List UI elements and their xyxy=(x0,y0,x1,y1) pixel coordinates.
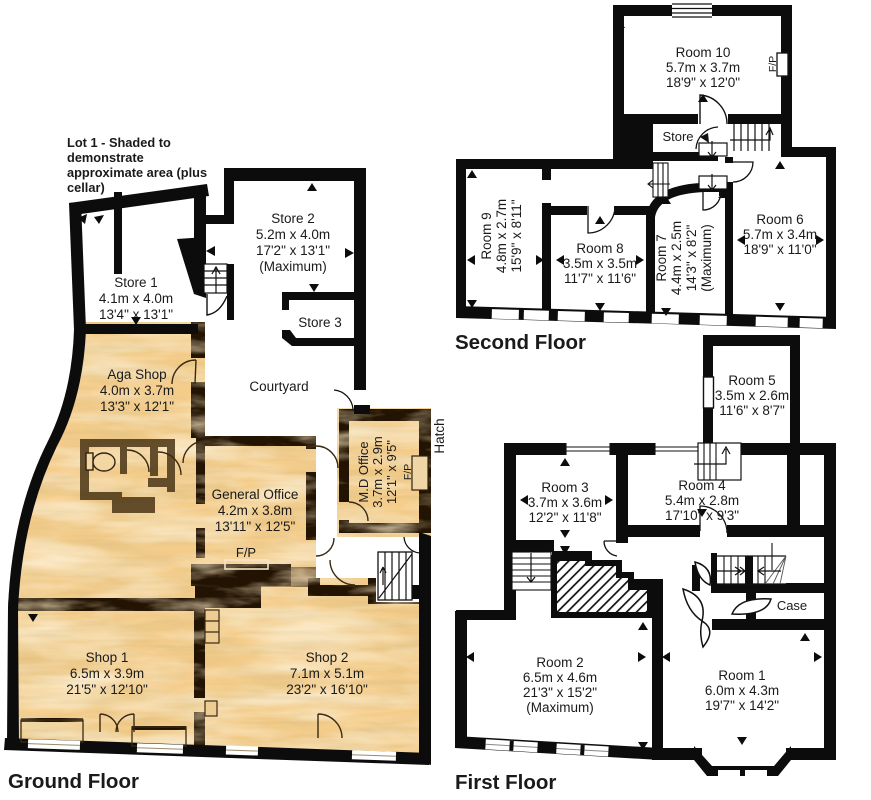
svg-text:Room 10: Room 10 xyxy=(676,45,731,60)
svg-text:3.7m x 2.9m: 3.7m x 2.9m xyxy=(370,436,385,508)
svg-text:Room 5: Room 5 xyxy=(728,373,775,388)
svg-text:5.7m x 3.4m: 5.7m x 3.4m xyxy=(743,227,817,242)
svg-text:4.8m x 2.7m: 4.8m x 2.7m xyxy=(494,199,509,273)
svg-text:Room 6: Room 6 xyxy=(756,212,803,227)
svg-text:Hatch: Hatch xyxy=(432,418,447,453)
svg-text:3.5m x 2.6m: 3.5m x 2.6m xyxy=(715,388,789,403)
svg-text:Store 1: Store 1 xyxy=(114,275,158,290)
svg-text:5.7m x 3.7m: 5.7m x 3.7m xyxy=(666,60,740,75)
svg-text:Store: Store xyxy=(662,129,693,144)
svg-text:18'9" x 11'0": 18'9" x 11'0" xyxy=(743,242,816,257)
svg-text:F/P: F/P xyxy=(236,545,256,560)
svg-text:12'2" x 11'8": 12'2" x 11'8" xyxy=(528,510,601,525)
svg-text:Courtyard: Courtyard xyxy=(249,379,308,394)
svg-text:5.2m x 4.0m: 5.2m x 4.0m xyxy=(256,227,330,242)
svg-text:23'2" x 16'10": 23'2" x 16'10" xyxy=(286,682,368,697)
svg-text:F/P: F/P xyxy=(402,464,414,480)
svg-text:6.5m x 3.9m: 6.5m x 3.9m xyxy=(70,666,144,681)
svg-text:Shop 1: Shop 1 xyxy=(86,650,129,665)
svg-text:12'1" x 9'5": 12'1" x 9'5" xyxy=(384,440,399,504)
svg-text:3.5m x 3.5m: 3.5m x 3.5m xyxy=(563,256,637,271)
svg-text:Room 3: Room 3 xyxy=(541,480,588,495)
svg-text:approximate area (plus: approximate area (plus xyxy=(67,165,207,180)
svg-text:13'3" x 12'1": 13'3" x 12'1" xyxy=(100,399,174,414)
svg-text:Room 4: Room 4 xyxy=(678,478,726,493)
svg-text:11'6" x 8'7": 11'6" x 8'7" xyxy=(719,403,785,418)
svg-text:Aga Shop: Aga Shop xyxy=(107,367,166,382)
svg-text:4.1m x 4.0m: 4.1m x 4.0m xyxy=(99,291,173,306)
svg-text:Case: Case xyxy=(777,598,807,613)
svg-text:5.4m x 2.8m: 5.4m x 2.8m xyxy=(665,493,739,508)
svg-text:Shop 2: Shop 2 xyxy=(306,650,349,665)
svg-text:Store 2: Store 2 xyxy=(271,211,315,226)
svg-text:15'9" x 8'11": 15'9" x 8'11" xyxy=(509,199,524,272)
svg-text:cellar): cellar) xyxy=(67,180,105,195)
svg-text:13'11" x 12'5": 13'11" x 12'5" xyxy=(215,519,296,534)
svg-text:7.1m x 5.1m: 7.1m x 5.1m xyxy=(290,666,364,681)
svg-text:Lot 1 - Shaded to: Lot 1 - Shaded to xyxy=(67,135,171,150)
svg-text:Room 9: Room 9 xyxy=(479,212,494,259)
svg-text:Room 1: Room 1 xyxy=(718,668,765,683)
svg-text:4.4m x 2.5m: 4.4m x 2.5m xyxy=(669,221,684,295)
svg-text:Second Floor: Second Floor xyxy=(455,331,586,354)
svg-text:(Maximum): (Maximum) xyxy=(259,259,327,274)
svg-text:General Office: General Office xyxy=(212,487,299,502)
svg-text:demonstrate: demonstrate xyxy=(67,150,144,165)
svg-text:Room 8: Room 8 xyxy=(576,241,623,256)
svg-text:Store 3: Store 3 xyxy=(298,315,342,330)
svg-text:19'7" x 14'2": 19'7" x 14'2" xyxy=(705,698,779,713)
svg-text:11'7" x 11'6": 11'7" x 11'6" xyxy=(564,271,636,286)
svg-text:4.2m x 3.8m: 4.2m x 3.8m xyxy=(218,503,292,518)
svg-text:Room 2: Room 2 xyxy=(536,655,583,670)
svg-text:Ground Floor: Ground Floor xyxy=(8,770,139,793)
svg-text:17'2" x 13'1": 17'2" x 13'1" xyxy=(256,243,330,258)
svg-text:First Floor: First Floor xyxy=(455,771,556,794)
svg-text:3.7m x 3.6m: 3.7m x 3.6m xyxy=(528,495,602,510)
svg-text:F/P: F/P xyxy=(767,56,779,72)
svg-text:4.0m x 3.7m: 4.0m x 3.7m xyxy=(100,383,174,398)
svg-text:6.5m x 4.6m: 6.5m x 4.6m xyxy=(523,670,597,685)
svg-text:6.0m x 4.3m: 6.0m x 4.3m xyxy=(705,683,779,698)
svg-text:(Maximum): (Maximum) xyxy=(526,700,594,715)
svg-text:21'3" x 15'2": 21'3" x 15'2" xyxy=(523,685,597,700)
svg-text:18'9" x 12'0": 18'9" x 12'0" xyxy=(666,75,740,90)
svg-text:21'5" x 12'10": 21'5" x 12'10" xyxy=(66,682,148,697)
svg-text:M.D Office: M.D Office xyxy=(356,441,371,502)
svg-text:Room 7: Room 7 xyxy=(654,234,669,281)
svg-text:14'3" x 8'2": 14'3" x 8'2" xyxy=(684,225,699,292)
svg-text:(Maximum): (Maximum) xyxy=(699,224,714,292)
